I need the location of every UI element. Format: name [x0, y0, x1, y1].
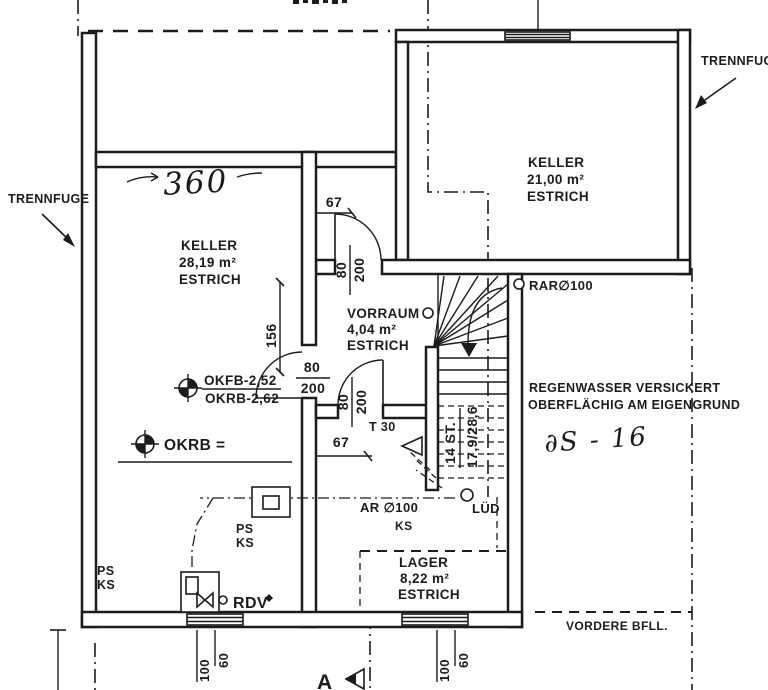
- svg-text:80: 80: [304, 359, 320, 375]
- floor-plan-drawing: 14 ST. 17,9/28,6: [0, 0, 768, 690]
- rdv-port: [219, 596, 227, 604]
- wall-keller-right-east: [678, 30, 690, 274]
- svg-text:∂S - 16: ∂S - 16: [543, 422, 648, 459]
- regenwasser-line1: REGENWASSER VERSICKERT: [529, 381, 720, 395]
- svg-text:100: 100: [437, 659, 452, 682]
- svg-text:ESTRICH: ESTRICH: [527, 189, 589, 204]
- okfb-label: OKFB-2,52: [204, 373, 277, 388]
- ps-label-left: PS: [97, 564, 114, 578]
- svg-text:8,22 m²: 8,22 m²: [400, 571, 449, 586]
- svg-text:80: 80: [335, 394, 351, 410]
- basement-plan-svg: 14 ST. 17,9/28,6: [0, 0, 768, 690]
- stair-steps-upper: [438, 358, 508, 394]
- svg-text:21,00 m²: 21,00 m²: [527, 172, 584, 187]
- window-south-right: [402, 614, 468, 625]
- door-vorraum-north: [335, 214, 381, 260]
- svg-text:ESTRICH: ESTRICH: [398, 587, 460, 602]
- rar-pipe-symbol: [514, 279, 524, 289]
- trennfuge-right-label: TRENNFUGE: [701, 54, 768, 68]
- handwritten-note: ∂S - 16: [543, 422, 648, 459]
- handwritten-360: 360: [162, 164, 229, 203]
- svg-text:VORRAUM: VORRAUM: [347, 306, 420, 321]
- lued-vent-symbol: [461, 489, 473, 501]
- trennfuge-left-label: TRENNFUGE: [8, 192, 89, 206]
- svg-text:ESTRICH: ESTRICH: [347, 338, 409, 353]
- dim-door-keller-left: 80 200: [296, 359, 330, 396]
- annotations: TRENNFUGE TRENNFUGE REGENWASSER VERSICKE…: [8, 54, 768, 690]
- cutoff-text-top: [293, 0, 347, 4]
- svg-text:200: 200: [351, 258, 367, 283]
- okrb-eq-label: OKRB =: [164, 437, 225, 454]
- wall-vorraum-west-lower: [302, 398, 316, 627]
- svg-text:80: 80: [333, 262, 349, 278]
- stair-newel: [423, 308, 433, 318]
- svg-text:KELLER: KELLER: [528, 155, 584, 170]
- svg-text:360: 360: [162, 164, 229, 203]
- ps-label-mid: PS: [236, 522, 253, 536]
- stair-annotation: 14 ST. 17,9/28,6: [442, 406, 480, 468]
- dim-window-south-right: 100 60: [437, 630, 471, 682]
- dim-door-t30: 80 200: [335, 377, 369, 427]
- svg-text:67: 67: [326, 194, 342, 210]
- lued-label: LÜD: [472, 501, 500, 516]
- wall-keller-right-south: [382, 260, 690, 274]
- dim-window-south-left: 100 60: [197, 630, 231, 682]
- stair-exit-arrow: [402, 437, 422, 455]
- svg-text:KELLER: KELLER: [181, 238, 237, 253]
- label-vorraum: VORRAUM 4,04 m² ESTRICH: [347, 306, 420, 353]
- wall-east: [508, 274, 522, 627]
- svg-text:67: 67: [333, 434, 349, 450]
- svg-text:28,19 m²: 28,19 m²: [179, 255, 236, 270]
- window-north: [505, 32, 570, 40]
- stair-walkline: [468, 288, 502, 344]
- ks-small-label: KS: [395, 519, 412, 533]
- wall-west: [82, 33, 96, 627]
- trennfuge-right-arrowhead: [695, 95, 707, 109]
- label-keller-right: KELLER 21,00 m² ESTRICH: [527, 155, 589, 204]
- wall-keller-right-west: [396, 42, 408, 260]
- window-south-left: [187, 614, 243, 625]
- svg-text:LAGER: LAGER: [399, 555, 448, 570]
- svg-text:200: 200: [301, 380, 326, 396]
- svg-text:100: 100: [197, 659, 212, 682]
- label-lager: LAGER 8,22 m² ESTRICH: [398, 555, 460, 602]
- svg-text:156: 156: [263, 323, 279, 348]
- wall-corridor-north: [96, 152, 396, 167]
- section-a-triangle-fill: [346, 674, 356, 685]
- dim-67-bottom: 67: [316, 434, 372, 461]
- vordere-bfll-label: VORDERE BFLL.: [566, 619, 668, 633]
- ks-label-mid: KS: [236, 536, 254, 550]
- rdv-label: RDV: [233, 595, 268, 612]
- svg-text:200: 200: [353, 390, 369, 415]
- ar-label: AR ∅100: [360, 500, 418, 515]
- wall-vorraum-west-upper: [302, 152, 316, 345]
- t30-label: T 30: [369, 420, 396, 434]
- section-a-label: A: [317, 671, 333, 690]
- svg-text:ESTRICH: ESTRICH: [179, 272, 241, 287]
- svg-text:60: 60: [216, 653, 231, 668]
- svg-text:4,04 m²: 4,04 m²: [347, 322, 396, 337]
- dim-door-vorraum-north: 80 200: [333, 245, 367, 295]
- stair-count-label: 14 ST.: [442, 422, 458, 464]
- stair-winder-treads: [434, 276, 508, 346]
- svg-text:60: 60: [456, 653, 471, 668]
- okrb-label: OKRB-2,62: [205, 391, 279, 406]
- rar-label: RAR∅100: [529, 278, 593, 293]
- regenwasser-line2: OBERFLÄCHIG AM EIGENGRUND: [528, 397, 740, 412]
- handwritten-arrow-right: [237, 173, 262, 177]
- junction-box-inner: [263, 496, 279, 509]
- trennfuge-right-arrow: [702, 78, 736, 102]
- stair-ratio-label: 17,9/28,6: [464, 406, 480, 468]
- stair-down-arrow: [461, 343, 477, 357]
- ks-label-left: KS: [97, 578, 115, 592]
- label-keller-left: KELLER 28,19 m² ESTRICH: [179, 238, 241, 287]
